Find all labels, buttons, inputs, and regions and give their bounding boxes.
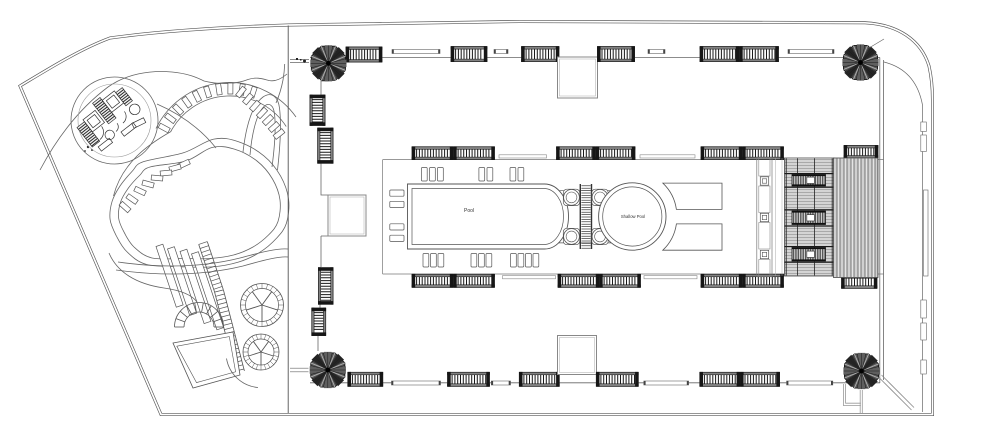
svg-text:Pool: Pool bbox=[464, 208, 474, 214]
svg-text:Shallow Pool: Shallow Pool bbox=[621, 214, 645, 219]
